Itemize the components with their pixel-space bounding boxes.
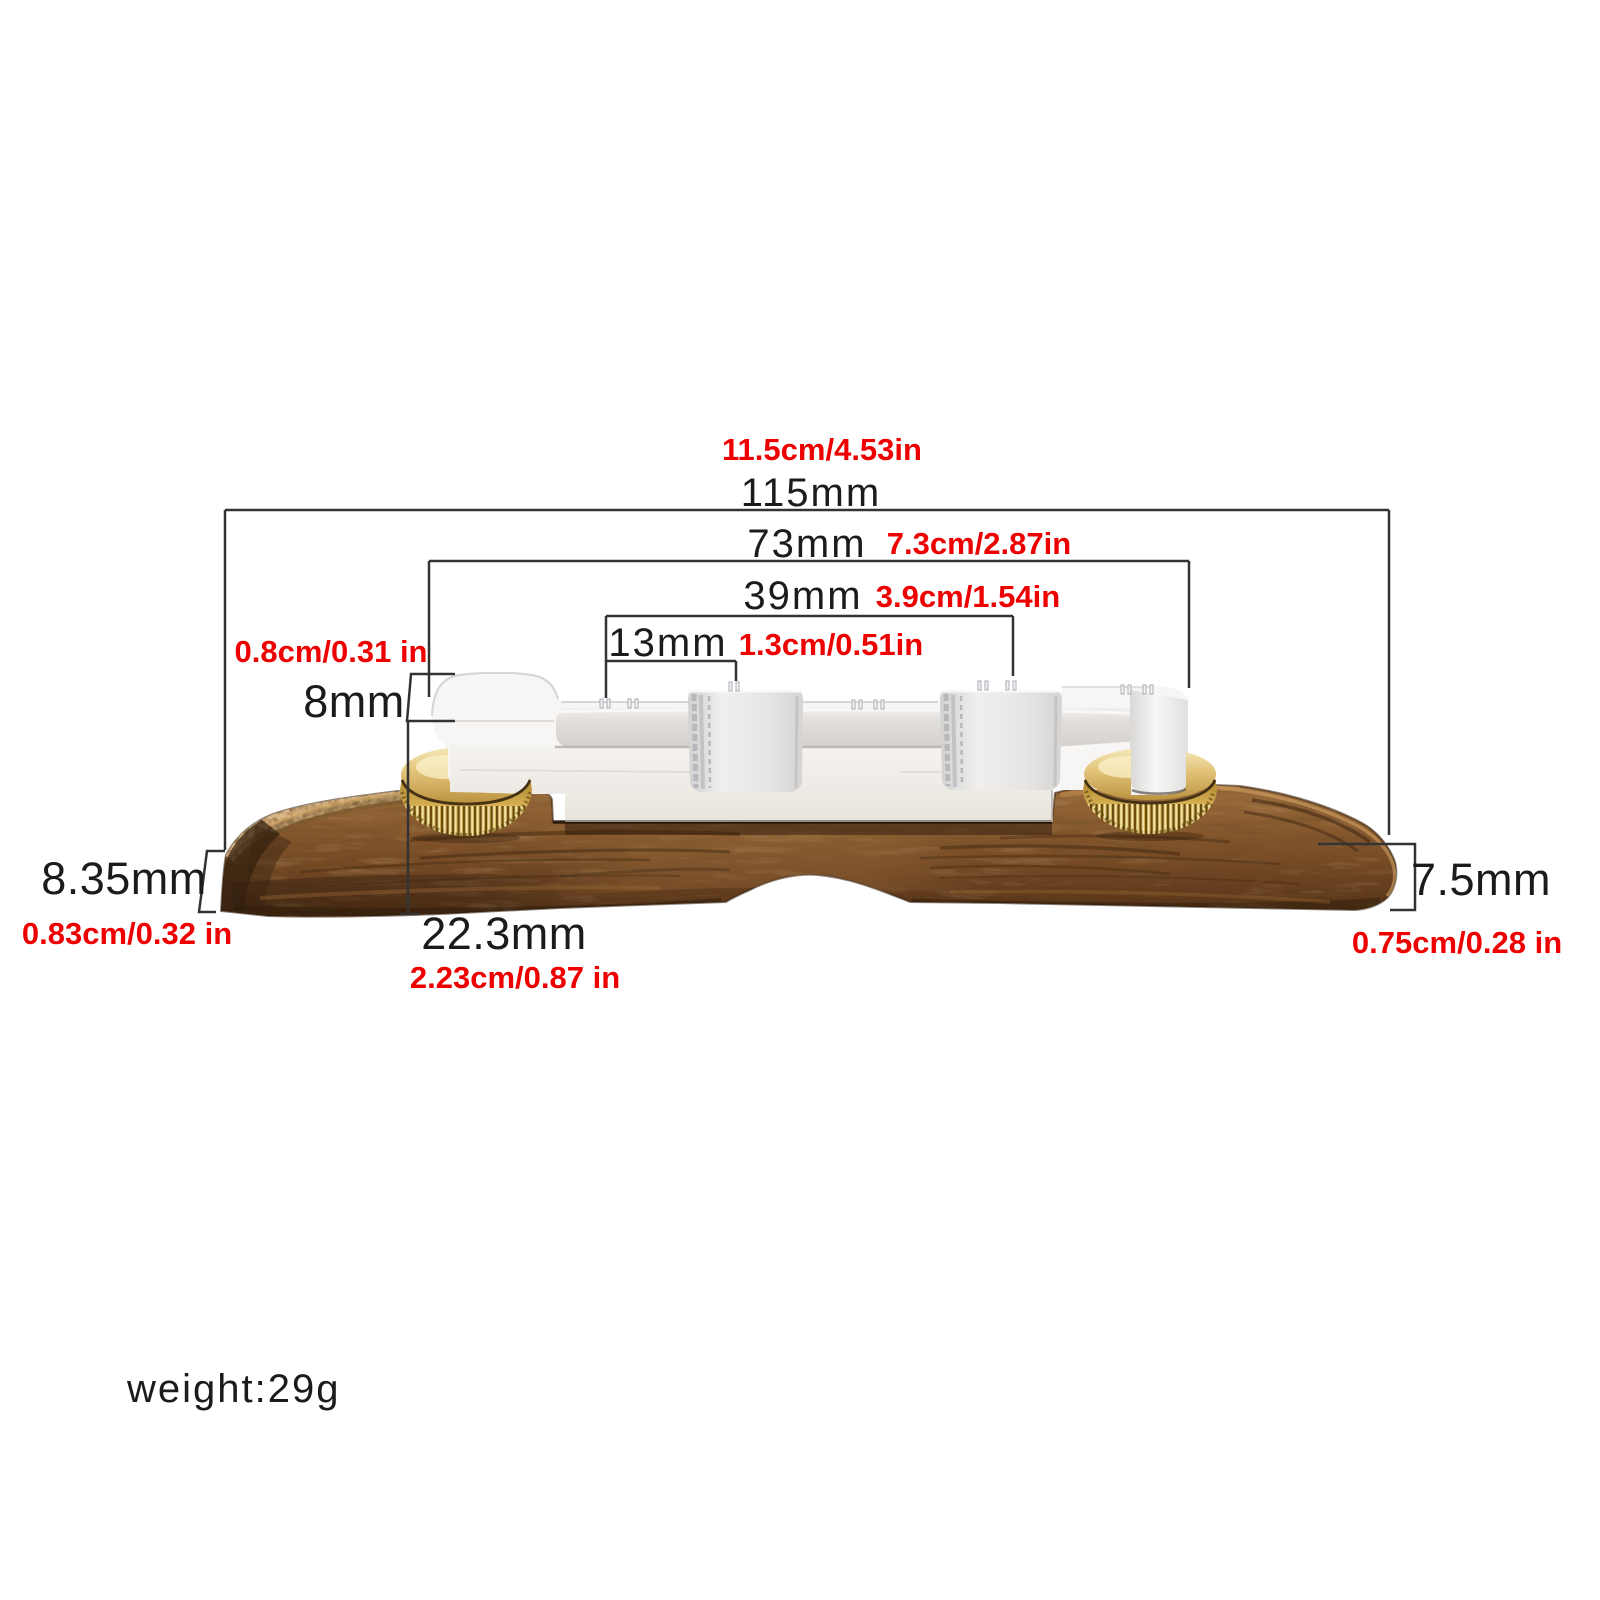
svg-text:0.75cm/0.28 in: 0.75cm/0.28 in bbox=[1352, 925, 1562, 960]
svg-text:115mm: 115mm bbox=[741, 471, 881, 515]
svg-text:1.3cm/0.51in: 1.3cm/0.51in bbox=[739, 627, 923, 662]
svg-text:0.8cm/0.31 in: 0.8cm/0.31 in bbox=[234, 634, 427, 669]
svg-text:11.5cm/4.53in: 11.5cm/4.53in bbox=[722, 432, 922, 467]
svg-text:weight:29g: weight:29g bbox=[126, 1367, 340, 1411]
svg-text:22.3mm: 22.3mm bbox=[421, 908, 587, 959]
svg-text:2.23cm/0.87 in: 2.23cm/0.87 in bbox=[410, 960, 620, 995]
svg-text:13mm: 13mm bbox=[608, 621, 727, 665]
svg-text:73mm: 73mm bbox=[747, 522, 866, 566]
svg-text:8.35mm: 8.35mm bbox=[41, 853, 207, 904]
svg-text:7.3cm/2.87in: 7.3cm/2.87in bbox=[887, 526, 1071, 561]
svg-text:39mm: 39mm bbox=[743, 574, 862, 618]
svg-text:7.5mm: 7.5mm bbox=[1411, 854, 1551, 905]
svg-text:3.9cm/1.54in: 3.9cm/1.54in bbox=[876, 579, 1060, 614]
svg-text:8mm: 8mm bbox=[303, 676, 405, 727]
svg-text:0.83cm/0.32 in: 0.83cm/0.32 in bbox=[22, 916, 232, 951]
